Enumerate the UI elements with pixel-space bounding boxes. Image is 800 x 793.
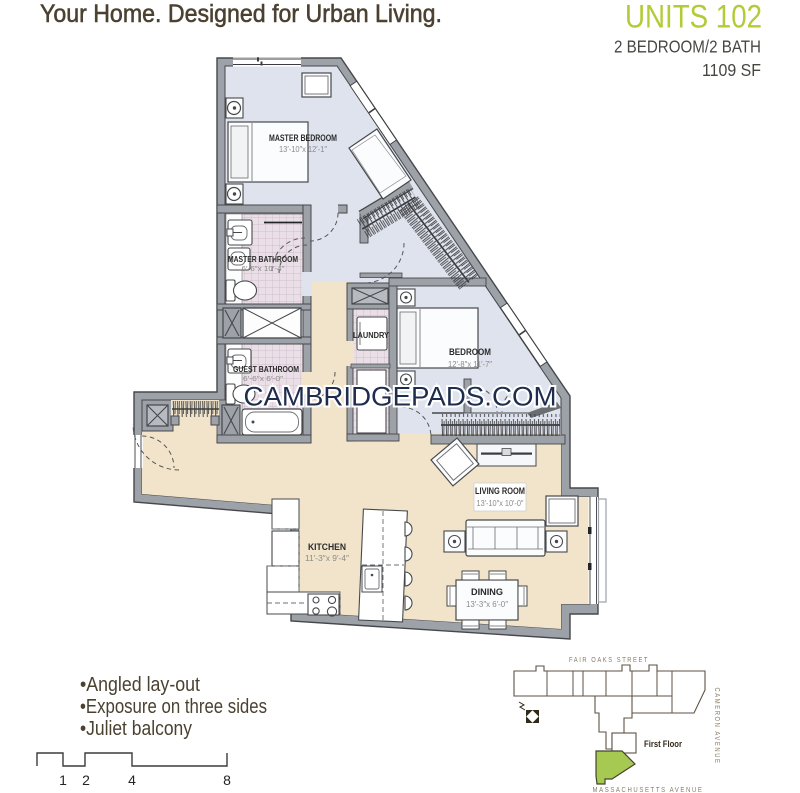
svg-text:GUEST BATHROOM: GUEST BATHROOM	[233, 365, 299, 374]
svg-text:LAUNDRY: LAUNDRY	[353, 331, 390, 340]
svg-text:MASSACHUSETTS AVENUE: MASSACHUSETTS AVENUE	[593, 785, 704, 793]
svg-text:KITCHEN: KITCHEN	[308, 542, 346, 552]
svg-text:MASTER BATHROOM: MASTER BATHROOM	[228, 255, 298, 264]
svg-text:FAIR OAKS STREET: FAIR OAKS STREET	[569, 655, 649, 664]
svg-text:13′-10″x 12′-1″: 13′-10″x 12′-1″	[279, 145, 327, 154]
svg-text:12′-8″x 11′-7″: 12′-8″x 11′-7″	[448, 360, 492, 369]
svg-text:13′-10″x 10′-0″: 13′-10″x 10′-0″	[477, 499, 524, 508]
svg-text:BEDROOM: BEDROOM	[449, 347, 491, 357]
svg-text:LIVING ROOM: LIVING ROOM	[475, 486, 525, 496]
svg-text:•Exposure on three sides: •Exposure on three sides	[80, 696, 267, 718]
svg-text:•Angled lay-out: •Angled lay-out	[80, 674, 200, 696]
svg-text:11′-3″x 9′-4″: 11′-3″x 9′-4″	[305, 554, 349, 563]
svg-text:•Juliet balcony: •Juliet balcony	[80, 718, 192, 740]
svg-text:MASTER BEDROOM: MASTER BEDROOM	[269, 133, 337, 143]
svg-text:First Floor: First Floor	[644, 739, 682, 750]
svg-text:13′-3″x 6′-0″: 13′-3″x 6′-0″	[466, 600, 508, 609]
svg-text:2 BEDROOM/2 BATH: 2 BEDROOM/2 BATH	[614, 37, 761, 57]
svg-text:UNITS 102: UNITS 102	[625, 0, 762, 35]
svg-text:2: 2	[82, 772, 90, 788]
svg-text:CAMERON AVENUE: CAMERON AVENUE	[713, 688, 722, 765]
svg-text:DINING: DINING	[471, 587, 503, 597]
svg-text:CAMBRIDGEPADS.COM: CAMBRIDGEPADS.COM	[244, 382, 557, 412]
svg-text:1109 SF: 1109 SF	[702, 60, 761, 80]
svg-text:6′-6″x 10′-4″: 6′-6″x 10′-4″	[242, 264, 285, 273]
svg-text:4: 4	[128, 772, 136, 788]
svg-text:8: 8	[223, 772, 231, 788]
svg-text:Your Home. Designed for Urban: Your Home. Designed for Urban Living.	[40, 0, 442, 28]
svg-text:1: 1	[59, 772, 67, 788]
